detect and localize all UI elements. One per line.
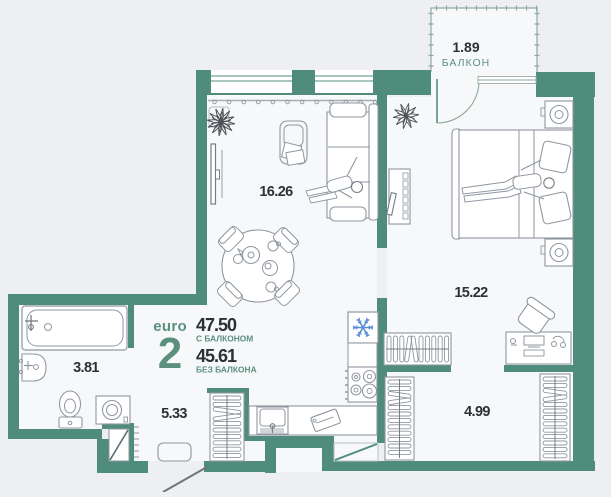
svg-text:1.89: 1.89 — [452, 39, 479, 55]
svg-text:16.26: 16.26 — [259, 184, 293, 200]
svg-text:БЕЗ БАЛКОНА: БЕЗ БАЛКОНА — [196, 365, 257, 375]
svg-text:15.22: 15.22 — [454, 285, 488, 301]
svg-text:С БАЛКОНОМ: С БАЛКОНОМ — [196, 334, 253, 344]
svg-text:2: 2 — [158, 329, 182, 378]
svg-text:3.81: 3.81 — [73, 360, 99, 376]
svg-text:4.99: 4.99 — [464, 404, 490, 420]
svg-text:45.61: 45.61 — [196, 346, 237, 366]
svg-text:БАЛКОН: БАЛКОН — [442, 57, 491, 69]
svg-text:5.33: 5.33 — [161, 406, 187, 422]
svg-text:47.50: 47.50 — [196, 315, 237, 335]
